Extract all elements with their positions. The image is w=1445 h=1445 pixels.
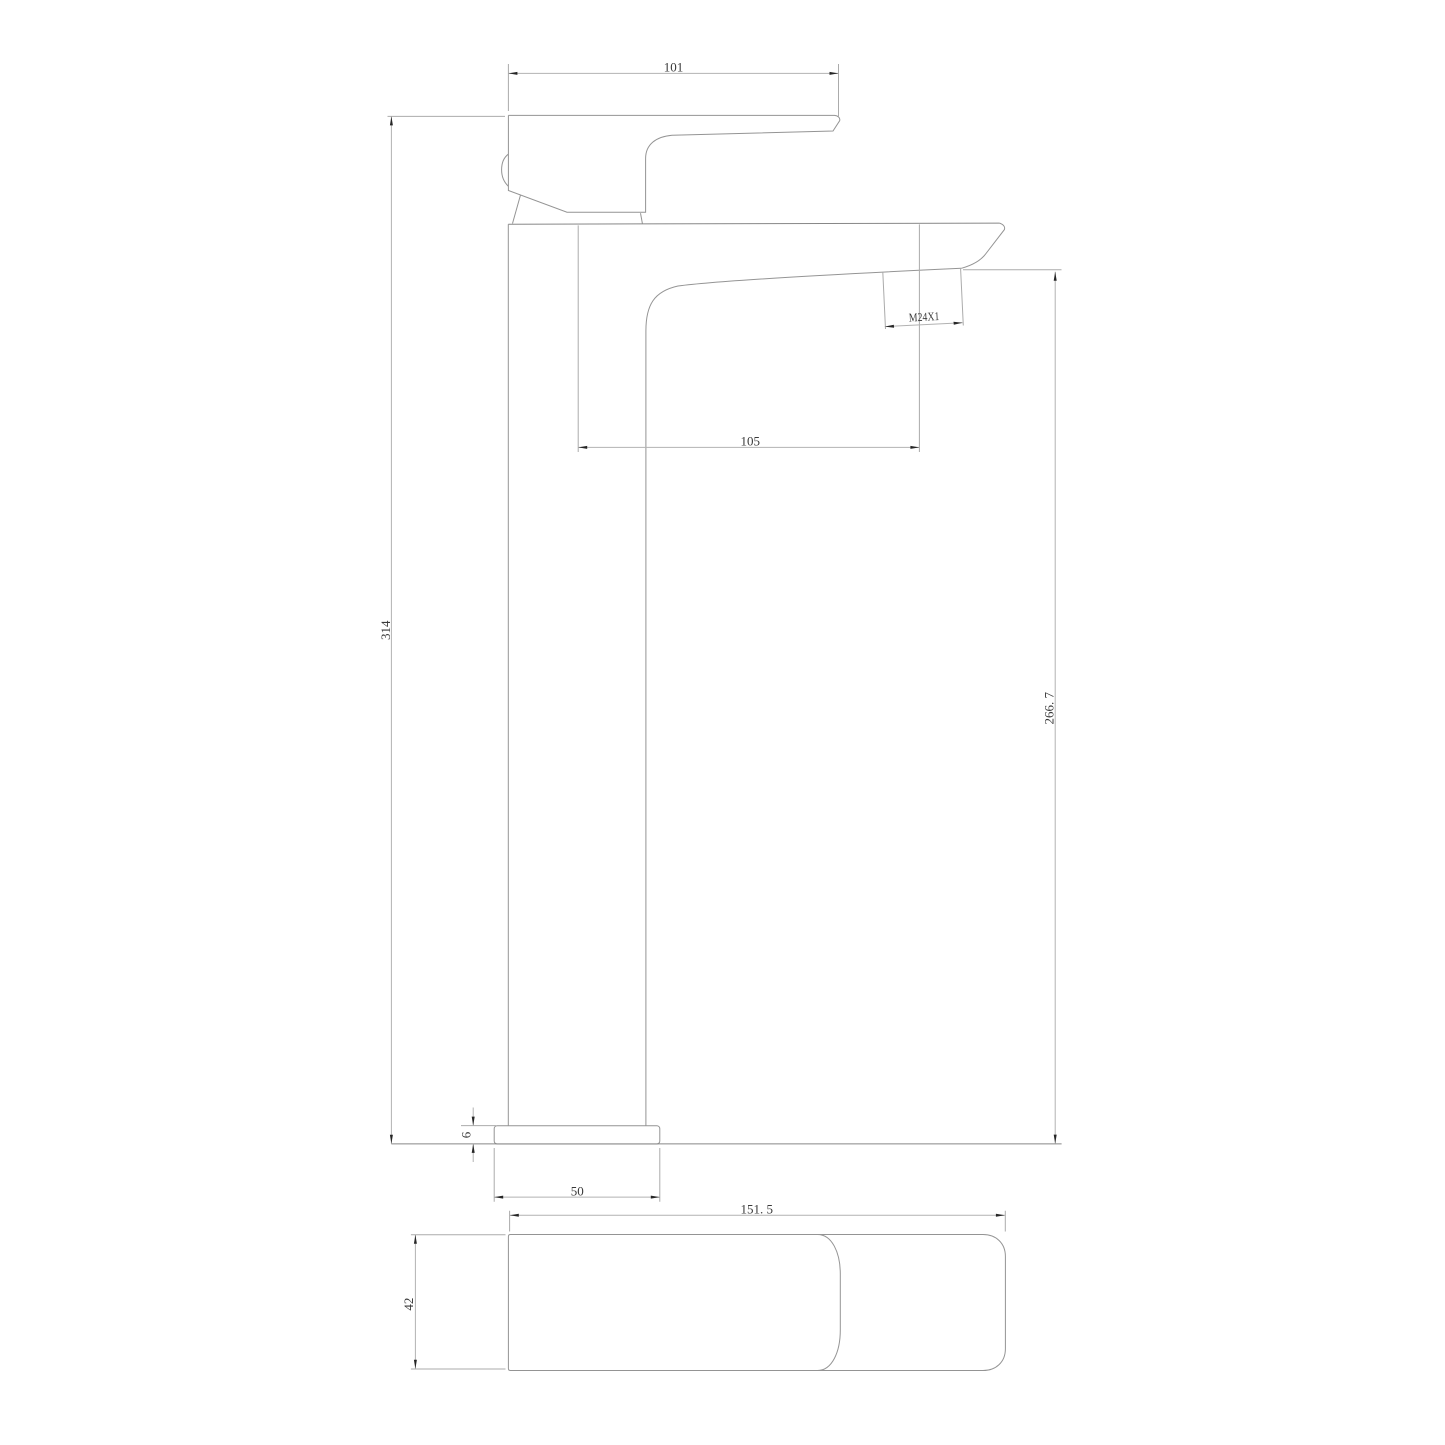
svg-text:105: 105: [740, 434, 760, 449]
svg-text:42: 42: [401, 1298, 416, 1311]
svg-text:314: 314: [378, 620, 393, 640]
svg-text:101: 101: [664, 60, 684, 75]
svg-text:266. 7: 266. 7: [1042, 692, 1057, 725]
svg-text:6: 6: [459, 1131, 474, 1138]
svg-text:50: 50: [571, 1183, 584, 1198]
svg-text:M24X1: M24X1: [908, 310, 939, 325]
svg-text:151. 5: 151. 5: [741, 1201, 774, 1216]
